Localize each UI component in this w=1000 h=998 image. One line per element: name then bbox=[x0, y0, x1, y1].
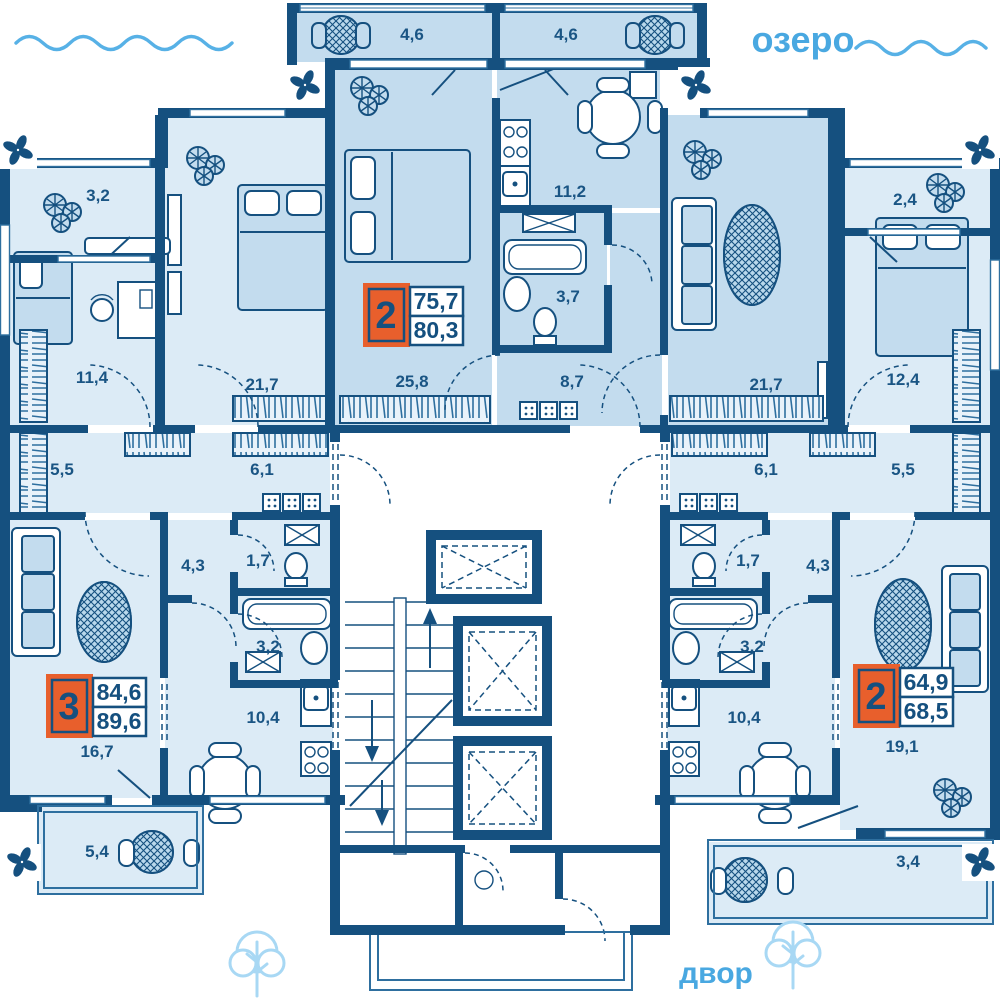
room-area-label: 10,4 bbox=[246, 708, 280, 727]
fan-icon bbox=[287, 67, 324, 104]
elevator-shaft bbox=[453, 616, 552, 726]
staircase bbox=[345, 598, 456, 854]
room-area-label: 1,7 bbox=[736, 551, 760, 570]
badge-area-total: 68,5 bbox=[904, 698, 949, 724]
apartment-badge-right[interactable]: 2 64,9 68,5 bbox=[853, 664, 953, 728]
badge-area-total: 80,3 bbox=[414, 317, 459, 343]
room-area-label: 11,2 bbox=[554, 182, 586, 201]
badge-area-living: 84,6 bbox=[97, 679, 142, 705]
yard-label: двор bbox=[679, 957, 753, 990]
lake-wave-right bbox=[856, 42, 986, 55]
room-area-label: 11,4 bbox=[76, 368, 109, 387]
fan-icon bbox=[0, 132, 37, 169]
room-area-label: 25,8 bbox=[395, 372, 428, 391]
building-core bbox=[340, 530, 662, 990]
tree-icon bbox=[230, 932, 284, 996]
room-area-label: 4,6 bbox=[400, 25, 424, 44]
badge-rooms-count: 2 bbox=[375, 295, 396, 337]
hall-cabinet bbox=[520, 402, 577, 419]
room-area-label: 5,4 bbox=[85, 842, 109, 861]
room-area-label: 6,1 bbox=[754, 460, 778, 479]
room-area-label: 12,4 bbox=[886, 370, 920, 389]
lake-label: озеро bbox=[752, 19, 855, 60]
fan-icon bbox=[962, 844, 999, 881]
floor-plan-svg: 4,6 4,6 3,2 11,4 21,7 25,8 11,2 3,7 8,7 … bbox=[0, 0, 1000, 998]
room-area-label: 21,7 bbox=[749, 375, 782, 394]
room-area-label: 8,7 bbox=[560, 372, 584, 391]
room-area-label: 5,5 bbox=[50, 460, 74, 479]
fan-icon bbox=[678, 67, 715, 104]
badge-area-living: 75,7 bbox=[414, 288, 459, 314]
badge-area-living: 64,9 bbox=[904, 669, 949, 695]
elevator-shaft bbox=[426, 530, 542, 604]
entrance-porch bbox=[370, 932, 632, 990]
room-area-label: 3,2 bbox=[740, 637, 764, 656]
room-area-label: 2,4 bbox=[893, 190, 917, 209]
room-area-label: 4,6 bbox=[554, 25, 578, 44]
elevator-shaft bbox=[453, 736, 552, 840]
fan-icon bbox=[4, 844, 41, 881]
room-area-label: 3,2 bbox=[86, 186, 110, 205]
fan-icon bbox=[962, 132, 999, 169]
lake-wave-left bbox=[16, 37, 232, 50]
room-area-label: 1,7 bbox=[246, 551, 270, 570]
room-area-label: 6,1 bbox=[250, 460, 274, 479]
room-area-label: 3,7 bbox=[556, 287, 580, 306]
room-area-label: 16,7 bbox=[80, 742, 113, 761]
room-area-label: 19,1 bbox=[885, 737, 918, 756]
corridor-cabinet bbox=[263, 494, 320, 511]
badge-rooms-count: 3 bbox=[58, 686, 79, 728]
room-area-label: 4,3 bbox=[806, 556, 830, 575]
tree-icon bbox=[766, 922, 820, 988]
room-area-label: 3,4 bbox=[896, 852, 920, 871]
room-area-label: 5,5 bbox=[891, 460, 915, 479]
room-area-label: 3,2 bbox=[256, 637, 280, 656]
floor-plan: 4,6 4,6 3,2 11,4 21,7 25,8 11,2 3,7 8,7 … bbox=[0, 0, 1000, 998]
room-area-label: 10,4 bbox=[727, 708, 761, 727]
bed-double bbox=[345, 150, 470, 262]
badge-rooms-count: 2 bbox=[865, 676, 886, 718]
badge-area-total: 89,6 bbox=[97, 708, 142, 734]
corridor-cabinet bbox=[680, 494, 737, 511]
apartment-badge-left[interactable]: 3 84,6 89,6 bbox=[46, 674, 146, 738]
room-area-label: 21,7 bbox=[245, 375, 278, 394]
apartment-badge-center[interactable]: 2 75,7 80,3 bbox=[363, 283, 463, 347]
room-area-label: 4,3 bbox=[181, 556, 205, 575]
